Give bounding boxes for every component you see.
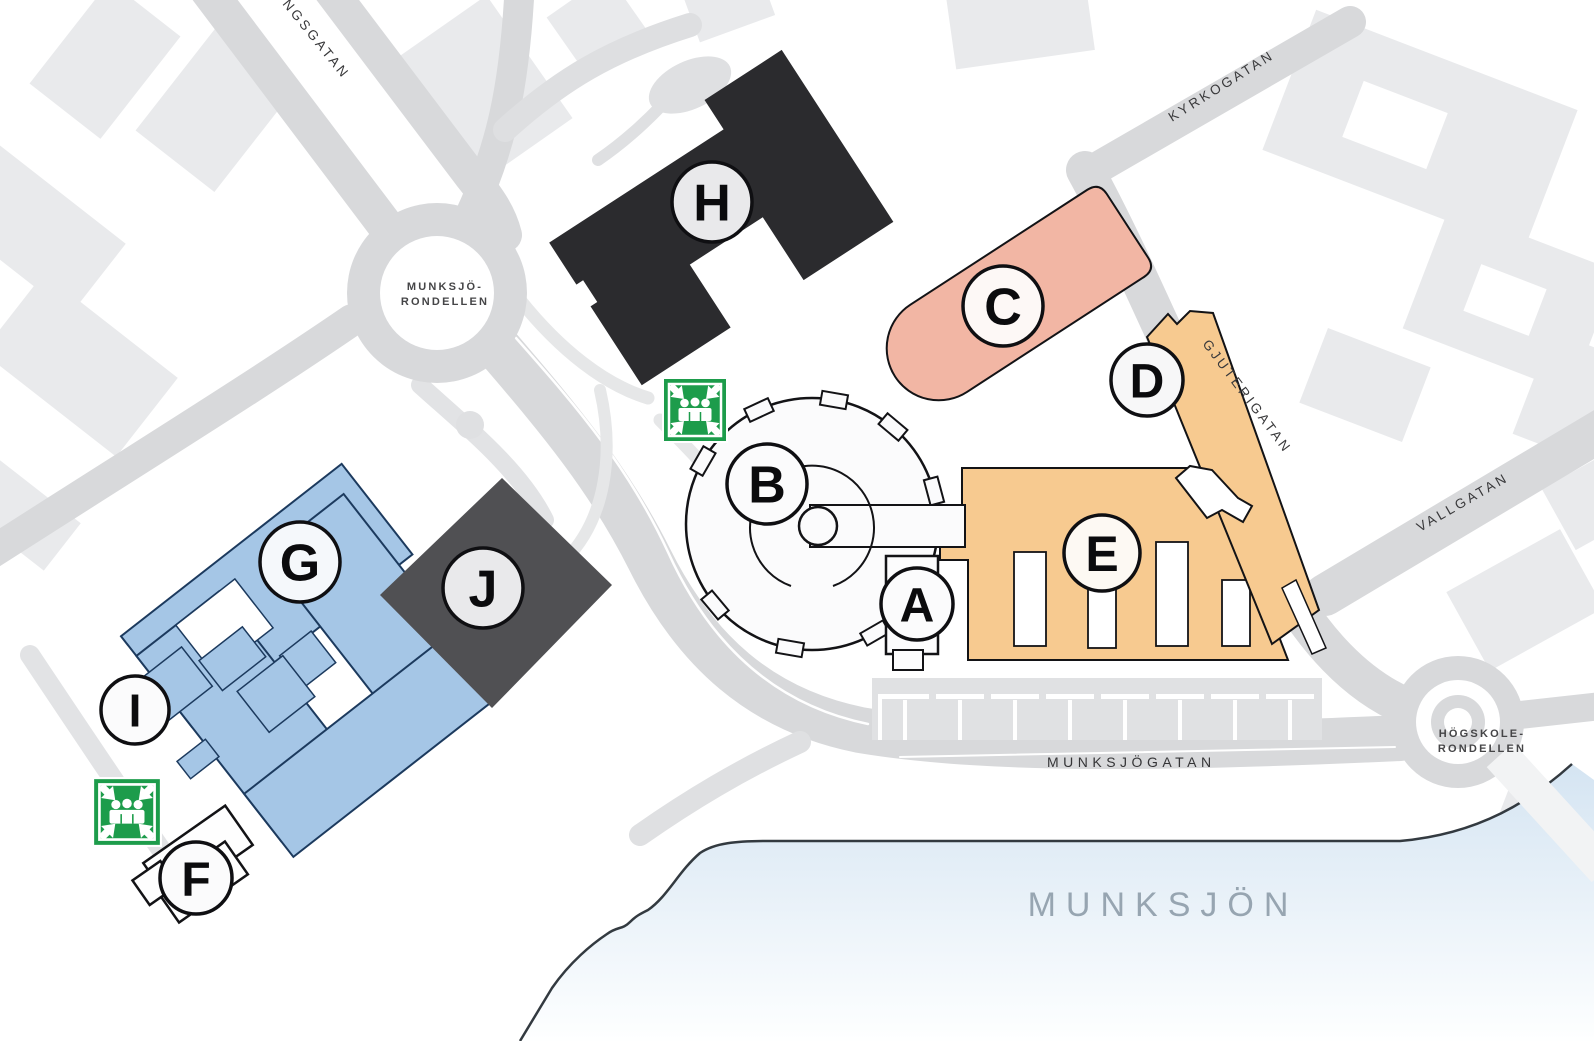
courtyard	[1088, 586, 1116, 648]
courtyard	[1222, 580, 1250, 646]
building-label-b: B	[727, 444, 807, 524]
munksjo-roundabout	[347, 203, 527, 383]
svg-text:I: I	[129, 685, 142, 737]
courtyard	[1014, 552, 1046, 646]
road-east	[1520, 705, 1594, 715]
munksjo-rondellen-label-line1: MUNKSJÖ-	[407, 280, 483, 293]
svg-text:G: G	[280, 535, 320, 593]
svg-text:C: C	[984, 279, 1022, 337]
svg-text:D: D	[1130, 355, 1165, 408]
svg-text:E: E	[1085, 526, 1118, 582]
context-building	[1446, 529, 1594, 671]
context-building	[1299, 328, 1430, 442]
building-label-i: I	[101, 676, 169, 744]
svg-text:A: A	[900, 579, 935, 632]
assembly-point-icon	[662, 377, 728, 443]
street-label-munksjogatan: MUNKSJÖGATAN	[1047, 753, 1216, 770]
building-label-h: H	[672, 162, 752, 242]
campus-map: NGSGATAN KYRKOGATAN GJUTERIGATAN VALLGAT…	[0, 0, 1594, 1041]
svg-text:B: B	[748, 457, 786, 515]
assembly-point-icon	[92, 777, 162, 847]
hogskole-rondellen-label-line2: RONDELLEN	[1438, 743, 1526, 755]
building-label-c: C	[963, 266, 1043, 346]
hogskole-rondellen-label-line1: HÖGSKOLE-	[1439, 727, 1525, 740]
building-label-g: G	[260, 522, 340, 602]
building-label-f: F	[160, 842, 232, 914]
context-building	[0, 273, 178, 456]
svg-text:J: J	[469, 561, 498, 619]
building-label-a: A	[881, 568, 953, 640]
building-label-j: J	[443, 548, 523, 628]
path-to-shore	[640, 742, 800, 835]
courtyard	[1156, 542, 1188, 646]
parking-area	[872, 678, 1322, 740]
munksjo-rondellen-label-line2: RONDELLEN	[401, 296, 489, 308]
svg-text:H: H	[693, 175, 731, 233]
building-label-d: D	[1111, 344, 1183, 416]
svg-text:F: F	[181, 853, 210, 906]
lake-label: MUNKSJÖN	[1028, 886, 1299, 924]
building-label-e: E	[1064, 515, 1140, 591]
context-building	[945, 0, 1095, 69]
